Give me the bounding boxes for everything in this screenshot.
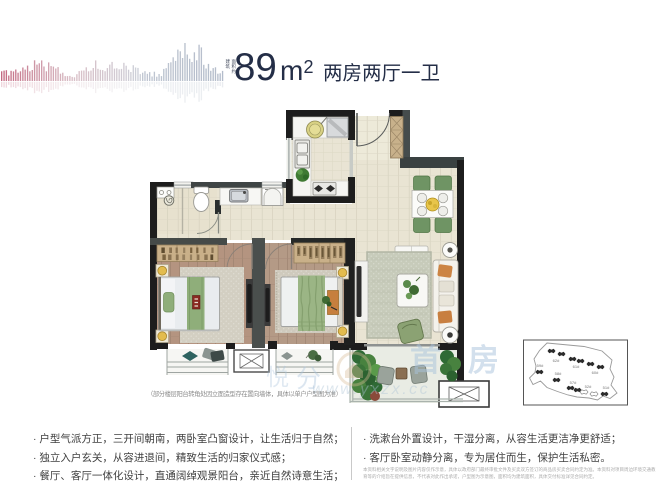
svg-text:首: 首 bbox=[410, 343, 441, 378]
svg-text:57#: 57# bbox=[570, 380, 577, 385]
svg-text:62#: 62# bbox=[553, 358, 560, 363]
svg-text:（部分楼层阳台转角处因立面造型存在置向墙体，具体以单户户型图: （部分楼层阳台转角处因立面造型存在置向墙体，具体以单户户型图为准） bbox=[147, 389, 342, 398]
svg-text:2: 2 bbox=[304, 57, 314, 77]
svg-text:89: 89 bbox=[234, 46, 277, 89]
svg-text:房: 房 bbox=[468, 343, 499, 378]
svg-text:51#: 51# bbox=[603, 385, 610, 390]
svg-text:两房两厅一卫: 两房两厅一卫 bbox=[323, 63, 440, 85]
svg-text:52#: 52# bbox=[585, 384, 592, 389]
svg-text:m: m bbox=[280, 55, 303, 86]
svg-text:悦: 悦 bbox=[266, 364, 289, 390]
svg-text:58#: 58# bbox=[555, 371, 562, 376]
svg-text:59#: 59# bbox=[537, 363, 544, 368]
svg-text:60#: 60# bbox=[592, 370, 599, 375]
svg-text:筑: 筑 bbox=[226, 63, 231, 70]
svg-text:61#: 61# bbox=[573, 364, 580, 369]
